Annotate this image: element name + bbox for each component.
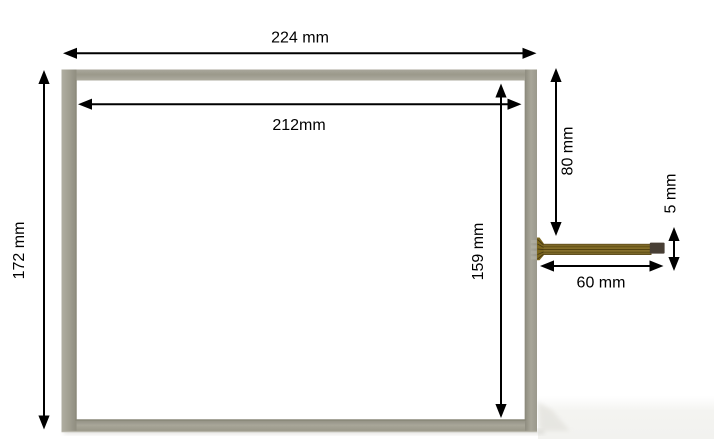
svg-text:60 mm: 60 mm (577, 275, 626, 292)
svg-text:80 mm: 80 mm (560, 127, 577, 176)
svg-text:224 mm: 224 mm (271, 30, 329, 47)
svg-text:172 mm: 172 mm (11, 222, 28, 280)
svg-text:212mm: 212mm (272, 117, 325, 134)
svg-text:159 mm: 159 mm (470, 223, 487, 281)
svg-text:5 mm: 5 mm (663, 174, 680, 214)
